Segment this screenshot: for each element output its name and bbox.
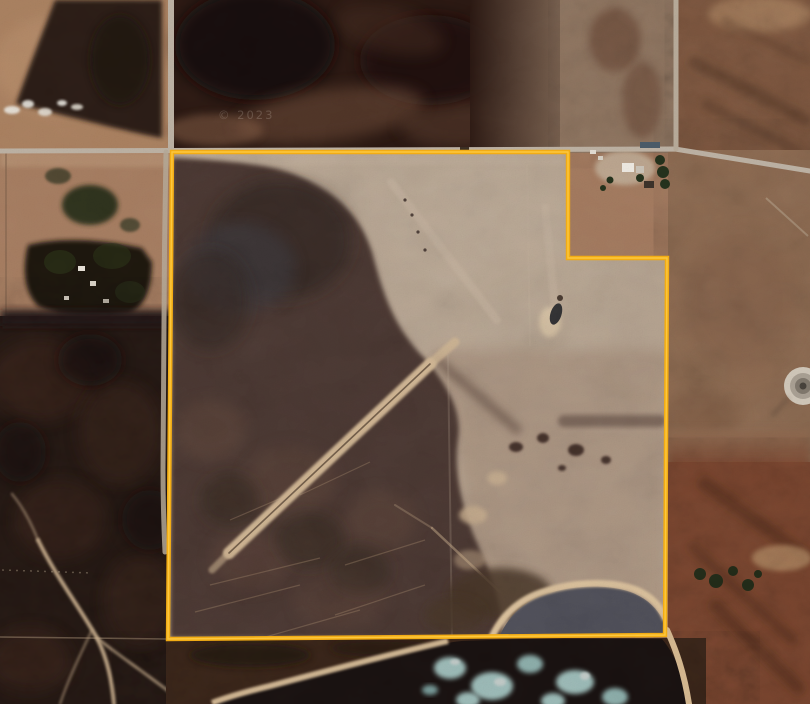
screenshot-root: © 2023 bbox=[0, 0, 810, 704]
imagery-watermark: © 2023 bbox=[218, 108, 274, 122]
satellite-map-canvas: © 2023 bbox=[0, 0, 810, 704]
terrain-mottle bbox=[0, 0, 810, 704]
